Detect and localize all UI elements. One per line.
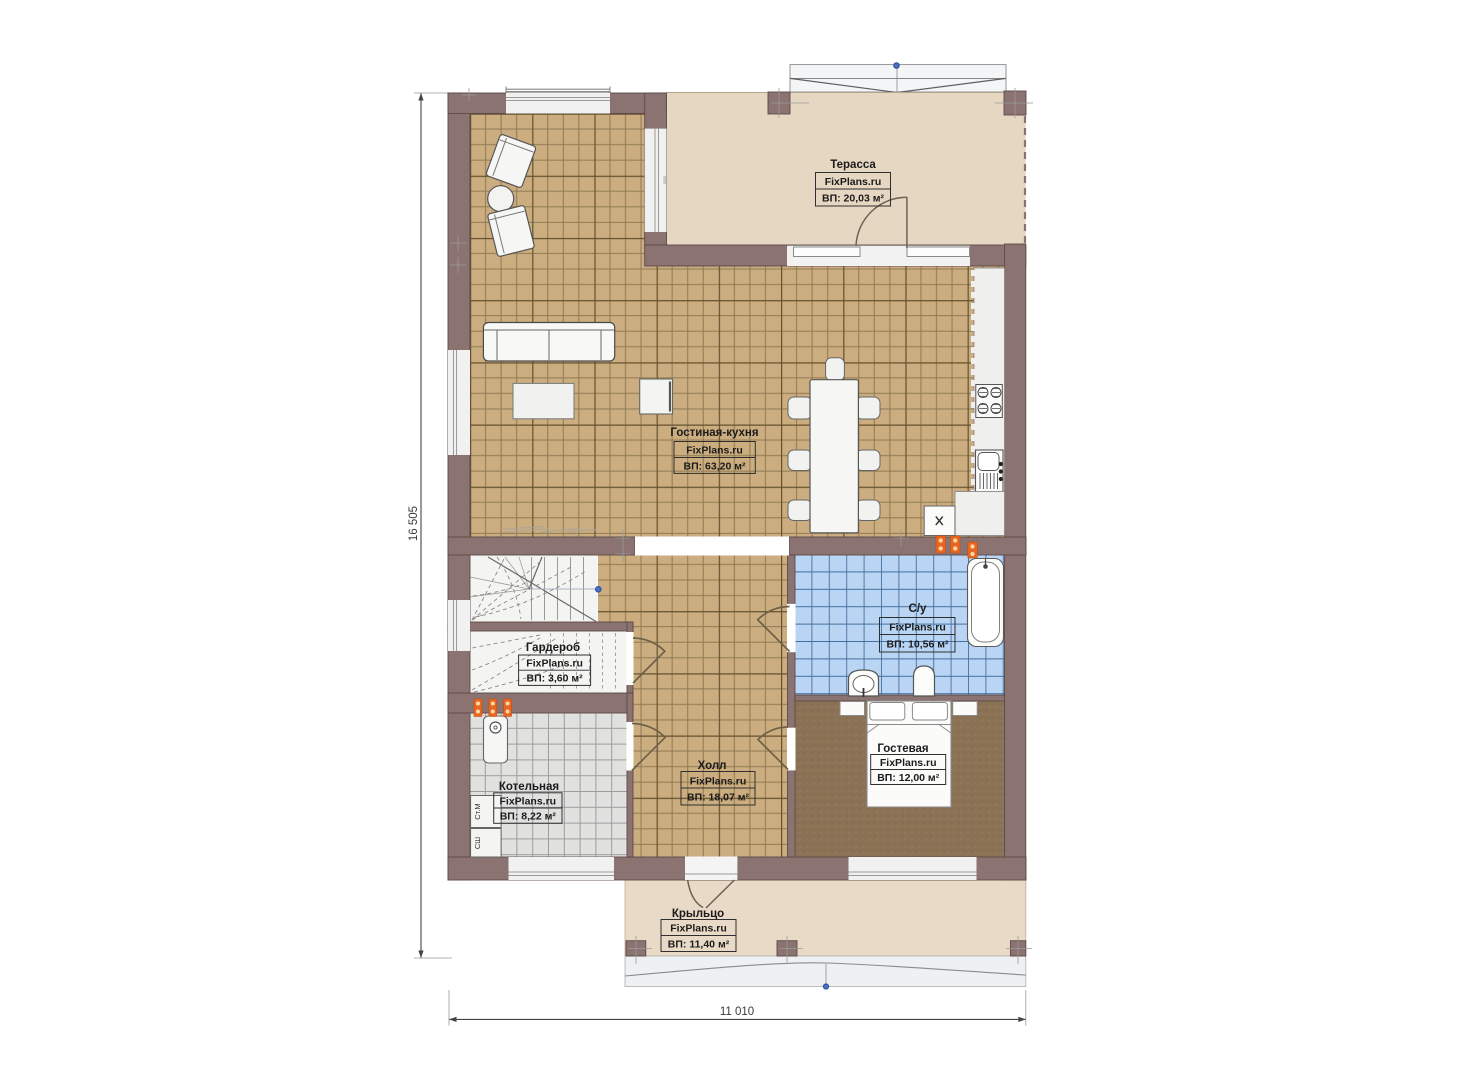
svg-text:FixPlans.ru: FixPlans.ru	[889, 622, 946, 634]
svg-text:Крыльцо: Крыльцо	[672, 908, 724, 920]
svg-text:FixPlans.ru: FixPlans.ru	[526, 658, 583, 670]
svg-text:Терасса: Терасса	[830, 159, 876, 171]
svg-text:Гардероб: Гардероб	[526, 642, 580, 654]
svg-text:СШ: СШ	[473, 837, 482, 849]
svg-text:FixPlans.ru: FixPlans.ru	[690, 776, 747, 788]
svg-text:ВП: 18,07 м²: ВП: 18,07 м²	[687, 792, 750, 804]
svg-text:Гостевая: Гостевая	[877, 743, 928, 755]
svg-text:С/у: С/у	[909, 603, 928, 615]
svg-text:FixPlans.ru: FixPlans.ru	[686, 445, 743, 457]
svg-text:ВП: 63,20 м²: ВП: 63,20 м²	[683, 461, 746, 473]
svg-text:FixPlans.ru: FixPlans.ru	[670, 923, 727, 935]
svg-text:ВП: 10,56 м²: ВП: 10,56 м²	[886, 639, 949, 651]
svg-text:ВП: 3,60 м²: ВП: 3,60 м²	[527, 673, 584, 685]
svg-text:Холл: Холл	[698, 760, 727, 772]
svg-text:FixPlans.ru: FixPlans.ru	[825, 176, 882, 188]
svg-text:FixPlans.ru: FixPlans.ru	[499, 796, 556, 808]
svg-text:ВП: 8,22 м²: ВП: 8,22 м²	[500, 811, 557, 823]
svg-text:Гостиная-кухня: Гостиная-кухня	[670, 427, 758, 439]
svg-text:ВП: 12,00 м²: ВП: 12,00 м²	[877, 772, 940, 784]
svg-text:16 505: 16 505	[408, 506, 420, 541]
svg-text:11 010: 11 010	[720, 1006, 754, 1018]
svg-text:Котельная: Котельная	[499, 781, 559, 793]
svg-text:ВП: 11,40 м²: ВП: 11,40 м²	[668, 939, 730, 951]
svg-text:ВП: 20,03 м²: ВП: 20,03 м²	[822, 193, 885, 205]
svg-text:Ст.М: Ст.М	[473, 803, 482, 819]
svg-text:FixPlans.ru: FixPlans.ru	[880, 757, 937, 769]
